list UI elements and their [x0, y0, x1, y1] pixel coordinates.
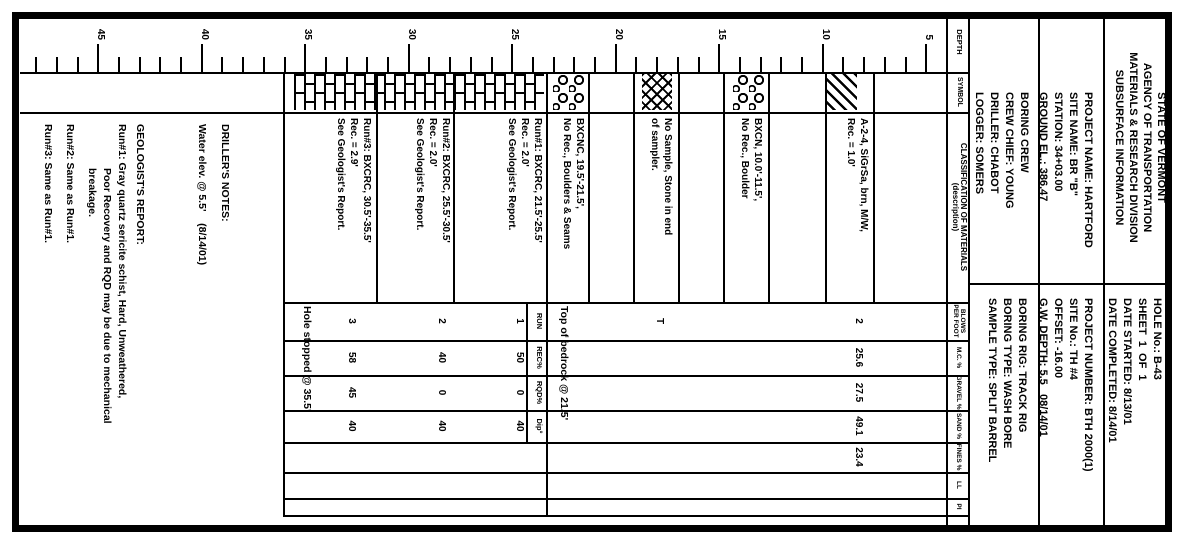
data-cell: 3 [346, 302, 357, 340]
log-note: Run#3: Same as Run#1. [42, 124, 54, 243]
depth-tick [387, 57, 389, 72]
grid-line [1103, 12, 1105, 532]
brick-course [374, 74, 384, 110]
grid-line [283, 72, 285, 517]
description-block: A-2-4, SiGrSa, brn, M/W,Rec. = 1.0' [844, 118, 870, 302]
depth-tick [573, 57, 575, 72]
data-cell: REC% [535, 340, 544, 375]
strata-symbol-brick [287, 74, 544, 110]
depth-tick [532, 57, 534, 72]
description-block: BXCN, 10.0'-11.5',No Rec., Boulder [738, 118, 764, 302]
data-cell: RQD% [535, 375, 544, 410]
depth-tick [615, 44, 617, 72]
brick-course [304, 74, 314, 110]
description-line: Run#3: BXCRC, 30.5'-35.5' [360, 118, 373, 302]
depth-tick [677, 57, 679, 72]
grid-line [526, 302, 528, 442]
header-line: PROJECT NAME: HARTFORD [1080, 92, 1095, 312]
header-line: PROJECT NUMBER: BTH 2000(1) [1080, 298, 1095, 532]
description-line: Rec. = 2.0' [518, 118, 531, 302]
header-line: HOLE No.: B-43 [1149, 298, 1164, 532]
data-cell: Dip° [535, 410, 544, 442]
log-note: Poor Recovery and RQD may be due to mech… [101, 168, 113, 424]
grid-line [283, 375, 970, 377]
boring-rig-block: BORING RIG: TRACK RIGBORING TYPE: WASH B… [984, 298, 1029, 532]
depth-tick [553, 57, 555, 72]
description-line: See Geologist's Report. [334, 118, 347, 302]
depth-tick [905, 57, 907, 72]
depth-tick [449, 57, 451, 72]
column-header-classification: CLASSIFICATION OF MATERIALS (description… [948, 112, 970, 302]
description-line: No Rec., Boulders & Seams [560, 118, 573, 302]
depth-label: 15 [716, 14, 727, 40]
brick-course [534, 74, 544, 110]
data-cell: 40 [436, 340, 447, 375]
description-block: Run#3: BXCRC, 30.5'-35.5'Rec. = 2.9'See … [334, 118, 373, 302]
brick-course [494, 74, 504, 110]
data-cell: 40 [436, 410, 447, 442]
depth-tick [201, 44, 203, 72]
data-cell: 25.6 [853, 340, 864, 375]
header-line: STATE OF VERMONT [1154, 12, 1168, 283]
log-note: Run#2: Same as Run#1. [64, 124, 76, 243]
project-info-block: PROJECT NAME: HARTFORDSITE NAME: BR "B"S… [1035, 92, 1095, 312]
grid-line [546, 72, 548, 517]
depth-tick [656, 57, 658, 72]
header-line: BORING TYPE: WASH BORE [999, 298, 1014, 532]
log-note: breakage. [86, 168, 98, 217]
brick-course [344, 74, 354, 110]
brick-course [424, 74, 434, 110]
description-line: No Sample, Stone in end [661, 118, 674, 302]
grid-line [283, 498, 970, 500]
strata-symbol-boulders [553, 74, 585, 110]
depth-label: 35 [302, 14, 313, 40]
header-line: SAMPLE TYPE: SPLIT BARREL [984, 298, 999, 532]
data-cell: 0 [514, 375, 525, 410]
brick-course [454, 74, 464, 110]
column-header-data: LL [948, 472, 970, 498]
data-cell: 2 [853, 302, 864, 340]
description-line: See Geologist's Report. [413, 118, 426, 302]
data-cell: 50 [514, 340, 525, 375]
depth-tick [946, 57, 948, 72]
brick-course [364, 74, 374, 110]
description-line: BXCNC, 19.5'-21.5', [573, 118, 586, 302]
grid-line [283, 515, 970, 517]
depth-tick [760, 57, 762, 72]
strata-symbol-boulders [733, 74, 765, 110]
boring-log-sheet: STATE OF VERMONTAGENCY OF TRANSPORTATION… [0, 0, 1184, 548]
header-line: BORING CREW [1016, 92, 1031, 312]
description-block: BXCNC, 19.5'-21.5',No Rec., Boulders & S… [560, 118, 586, 302]
header-line: DRILLER: CHABOT [986, 92, 1001, 312]
description-line: See Geologist's Report. [505, 118, 518, 302]
grid-line [723, 72, 725, 302]
header-line: STATION: 34+03.00 [1050, 92, 1065, 312]
description-line: Rec. = 2.0' [426, 118, 439, 302]
data-cell: 49.1 [853, 410, 864, 442]
brick-course [324, 74, 334, 110]
description-line: BXCN, 10.0'-11.5', [751, 118, 764, 302]
column-header-data: M.C. % [948, 340, 970, 375]
depth-tick [801, 57, 803, 72]
classification-label: CLASSIFICATION OF MATERIALS [959, 143, 967, 271]
hole-info-block: HOLE No.: B-43SHEET 1 OF 1DATE STARTED: … [1104, 298, 1164, 532]
data-cell: 1 [514, 302, 525, 340]
strata-symbol-diag [827, 74, 857, 110]
depth-tick [180, 57, 182, 72]
data-cell: T [654, 302, 665, 340]
depth-tick [304, 44, 306, 72]
brick-course [294, 74, 304, 110]
boring-log-page: STATE OF VERMONTAGENCY OF TRANSPORTATION… [0, 0, 1184, 548]
header-line: DATE STARTED: 8/13/01 [1119, 298, 1134, 532]
depth-tick [428, 57, 430, 72]
header-line: CREW CHIEF: YOUNG [1001, 92, 1016, 312]
depth-tick [491, 57, 493, 72]
brick-course [414, 74, 424, 110]
grid-line [970, 283, 1172, 285]
depth-tick [635, 57, 637, 72]
description-line: Rec. = 2.9' [347, 118, 360, 302]
depth-label: 20 [613, 14, 624, 40]
grid-line [633, 72, 635, 302]
description-block: Run#1: BXCRC, 21.5'-25.5'Rec. = 2.0'See … [505, 118, 544, 302]
column-header-data: FINES % [948, 442, 970, 472]
header-line: DATE COMPLETED: 8/14/01 [1104, 298, 1119, 532]
depth-tick [698, 57, 700, 72]
description-line: Run#2: BXCRC, 25.5'-30.5' [439, 118, 452, 302]
depth-tick [56, 57, 58, 72]
log-note: DRILLER'S NOTES: [219, 124, 231, 222]
description-line: Rec. = 1.0' [844, 118, 857, 302]
depth-tick [739, 57, 741, 72]
grid-line [283, 302, 970, 304]
depth-label: 10 [820, 14, 831, 40]
depth-tick [842, 57, 844, 72]
depth-label: 40 [199, 14, 210, 40]
depth-tick [925, 44, 927, 72]
data-cell: 23.4 [853, 442, 864, 472]
grid-line [678, 72, 680, 302]
log-note: Hole stopped @ 35.5' [301, 306, 313, 412]
brick-course [434, 74, 444, 110]
grid-line [768, 72, 770, 302]
data-cell: 45 [346, 375, 357, 410]
header-line: SITE NAME: BR "B" [1065, 92, 1080, 312]
depth-tick [594, 57, 596, 72]
column-header-symbol-label: SYMBOL [955, 77, 963, 107]
column-header-data: BLOWS PER FOOT [948, 302, 970, 340]
brick-course [524, 74, 534, 110]
project-number-block: PROJECT NUMBER: BTH 2000(1)SITE No.: TH … [1035, 298, 1095, 532]
depth-label: 30 [406, 14, 417, 40]
log-note: Top of bedrock @ 21.5' [558, 306, 570, 420]
description-line: A-2-4, SiGrSa, brn, M/W, [857, 118, 870, 302]
depth-label: 25 [509, 14, 520, 40]
description-line: No Rec., Boulder [738, 118, 751, 302]
description-line: Run#1: BXCRC, 21.5'-25.5' [531, 118, 544, 302]
depth-tick [325, 57, 327, 72]
grid-line [1038, 12, 1040, 532]
brick-course [314, 74, 324, 110]
depth-tick [139, 57, 141, 72]
log-note: Water elev. @ 5.5' (8/14/01) [196, 124, 208, 265]
brick-course [474, 74, 484, 110]
data-cell: 27.5 [853, 375, 864, 410]
depth-tick [221, 57, 223, 72]
header-line: SHEET 1 OF 1 [1134, 298, 1149, 532]
depth-tick [159, 57, 161, 72]
depth-tick [366, 57, 368, 72]
brick-course [354, 74, 364, 110]
depth-tick [718, 44, 720, 72]
data-cell: 40 [346, 410, 357, 442]
depth-tick [346, 57, 348, 72]
depth-tick [780, 57, 782, 72]
grid-line [20, 112, 970, 114]
depth-tick [470, 57, 472, 72]
depth-tick [408, 44, 410, 72]
header-line: SITE No.: TH #4 [1065, 298, 1080, 532]
header-line: BORING RIG: TRACK RIG [1014, 298, 1029, 532]
log-note: GEOLOGIST'S REPORT: [134, 124, 146, 245]
data-cell: 0 [436, 375, 447, 410]
brick-course [484, 74, 494, 110]
grid-line [283, 340, 970, 342]
log-note: Run#1: Gray quartz sericite schist, Hard… [116, 124, 128, 398]
header-line: SUBSURFACE INFORMATION [1112, 12, 1126, 283]
depth-tick [511, 44, 513, 72]
header-line: OFFSET: -16.00 [1050, 298, 1065, 532]
depth-tick [863, 57, 865, 72]
grid-line [283, 472, 970, 474]
column-header-data: SAND % [948, 410, 970, 442]
column-header-depth: DEPTH [948, 12, 970, 72]
boring-crew-block: BORING CREWCREW CHIEF: YOUNGDRILLER: CHA… [971, 92, 1031, 312]
column-header-data: PI [948, 498, 970, 515]
brick-course [394, 74, 404, 110]
data-cell: 2 [436, 302, 447, 340]
header-line: MATERIALS & RESEARCH DIVISION [1126, 12, 1140, 283]
header-line: LOGGER: SOMERS [971, 92, 986, 312]
depth-tick [118, 57, 120, 72]
brick-course [384, 74, 394, 110]
depth-tick [242, 57, 244, 72]
depth-tick [284, 57, 286, 72]
brick-course [504, 74, 514, 110]
grid-line [588, 72, 590, 302]
title-block: STATE OF VERMONTAGENCY OF TRANSPORTATION… [1112, 12, 1168, 283]
brick-course [404, 74, 414, 110]
brick-course [334, 74, 344, 110]
depth-tick [822, 44, 824, 72]
brick-course [444, 74, 454, 110]
data-cell: 40 [514, 410, 525, 442]
depth-label: 45 [95, 14, 106, 40]
depth-tick [884, 57, 886, 72]
grid-line [873, 72, 875, 302]
data-cell: 58 [346, 340, 357, 375]
column-header-depth-label: DEPTH [955, 29, 963, 54]
grid-line [283, 410, 970, 412]
data-cell: RUN [535, 302, 544, 340]
column-header-data: GRAVEL % [948, 375, 970, 410]
brick-course [514, 74, 524, 110]
column-header-symbol: SYMBOL [948, 72, 970, 112]
depth-label: 5 [923, 14, 934, 40]
classification-sublabel: (description) [951, 183, 959, 231]
description-line: of sampler. [648, 118, 661, 302]
depth-tick [97, 44, 99, 72]
strata-symbol-cross [642, 74, 672, 110]
description-block: No Sample, Stone in endof sampler. [648, 118, 674, 302]
header-line: AGENCY OF TRANSPORTATION [1140, 12, 1154, 283]
depth-tick [77, 57, 79, 72]
grid-line [283, 442, 970, 444]
depth-tick [35, 57, 37, 72]
depth-tick [263, 57, 265, 72]
description-block: Run#2: BXCRC, 25.5'-30.5'Rec. = 2.0'See … [413, 118, 452, 302]
brick-course [464, 74, 474, 110]
